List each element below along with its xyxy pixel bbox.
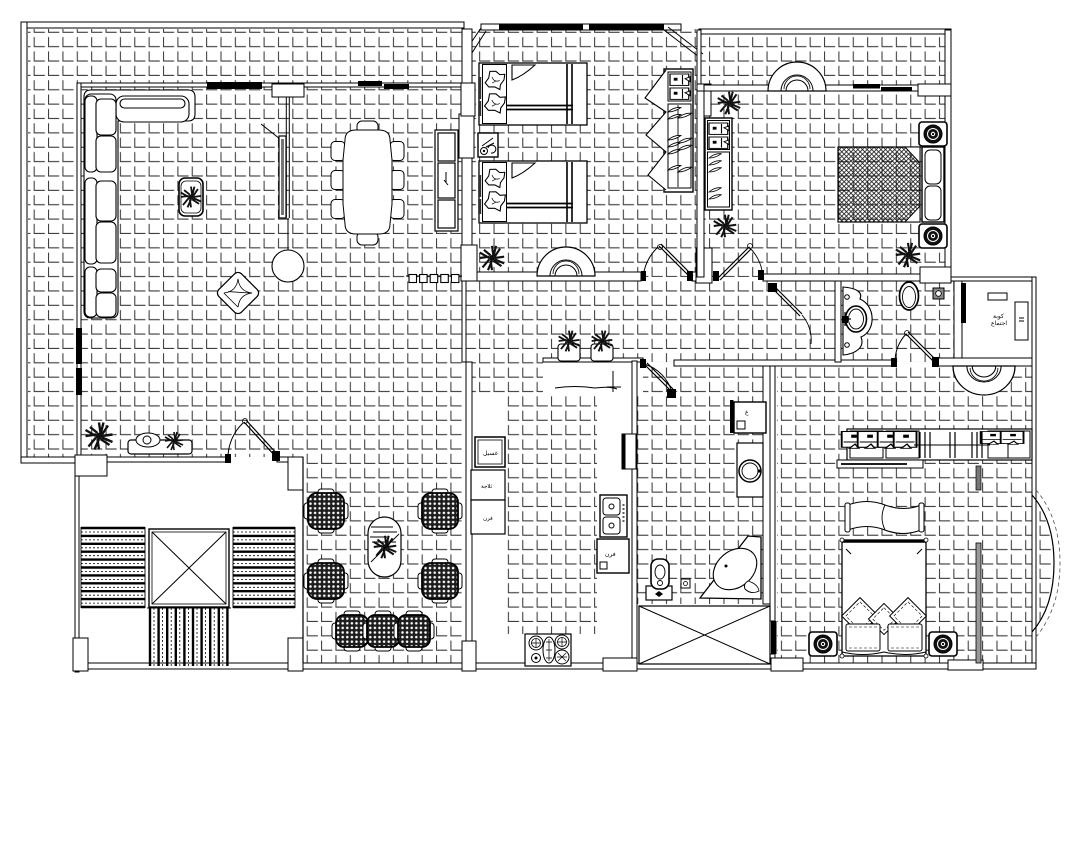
svg-text:غ: غ xyxy=(745,409,749,416)
svg-text:فرن: فرن xyxy=(483,516,493,522)
svg-text:اجتماع: اجتماع xyxy=(991,320,1007,327)
svg-text:كوبة: كوبة xyxy=(993,313,1004,320)
svg-text:فرن: فرن xyxy=(605,552,616,558)
svg-text:ثلاجة: ثلاجة xyxy=(481,483,493,490)
svg-text:غسيل: غسيل xyxy=(483,450,498,457)
